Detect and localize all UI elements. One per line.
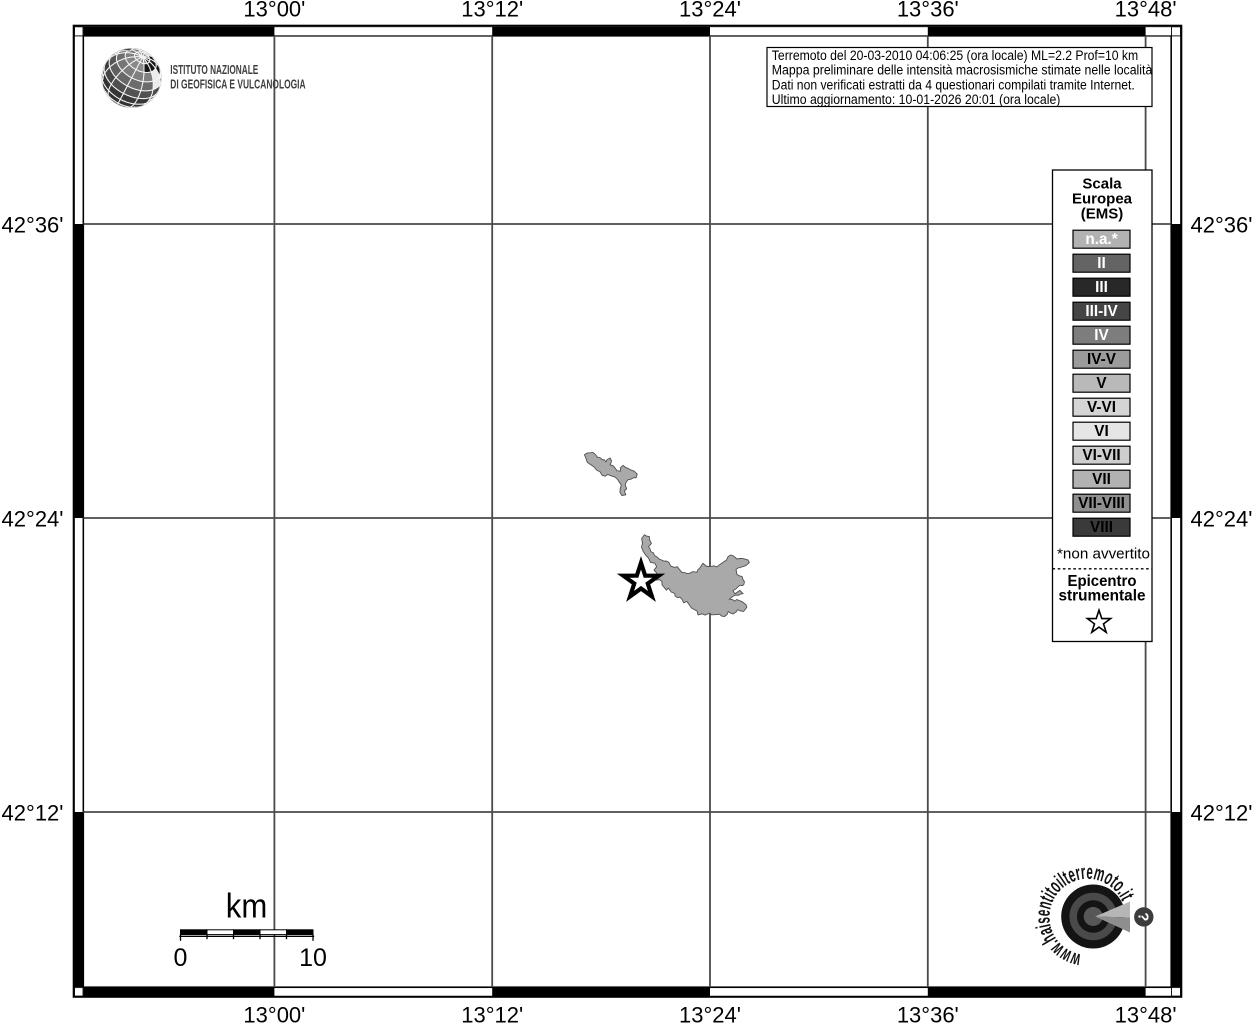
svg-text:10: 10	[299, 944, 327, 972]
svg-text:Dati non verificati estratti d: Dati non verificati estratti da 4 questi…	[772, 77, 1135, 93]
svg-text:ISTITUTO NAZIONALE: ISTITUTO NAZIONALE	[170, 62, 258, 77]
svg-text:VI: VI	[1094, 423, 1108, 440]
svg-text:13°48': 13°48'	[1115, 0, 1177, 22]
svg-text:II: II	[1097, 255, 1106, 272]
svg-text:strumentale: strumentale	[1059, 587, 1146, 604]
svg-text:13°36': 13°36'	[897, 0, 959, 22]
svg-text:n.a.*: n.a.*	[1085, 231, 1117, 248]
svg-text:13°00': 13°00'	[243, 1003, 305, 1024]
svg-text:(EMS): (EMS)	[1081, 205, 1124, 222]
svg-text:42°36': 42°36'	[2, 213, 64, 238]
svg-text:13°12': 13°12'	[461, 1003, 523, 1024]
svg-text:IV: IV	[1094, 327, 1109, 344]
svg-text:km: km	[226, 887, 268, 925]
svg-text:42°24': 42°24'	[1191, 507, 1253, 532]
svg-text:VII: VII	[1092, 471, 1111, 488]
svg-text:13°36': 13°36'	[897, 1003, 959, 1024]
svg-text:13°48': 13°48'	[1115, 1003, 1177, 1024]
svg-text:Terremoto del 20-03-2010 04:06: Terremoto del 20-03-2010 04:06:25 (ora l…	[772, 48, 1138, 64]
svg-text:III-IV: III-IV	[1085, 303, 1118, 320]
svg-text:VIII: VIII	[1090, 519, 1113, 536]
svg-text:*non avvertito: *non avvertito	[1057, 546, 1150, 563]
svg-text:42°12': 42°12'	[2, 801, 64, 826]
svg-text:IV-V: IV-V	[1087, 351, 1117, 368]
svg-text:V-VI: V-VI	[1087, 399, 1116, 416]
svg-text:?: ?	[1135, 912, 1152, 921]
svg-text:Mappa preliminare delle intens: Mappa preliminare delle intensità macros…	[772, 63, 1153, 79]
svg-text:VI-VII: VI-VII	[1082, 447, 1120, 464]
svg-text:42°24': 42°24'	[2, 507, 64, 532]
svg-text:V: V	[1096, 375, 1107, 392]
svg-text:42°12': 42°12'	[1191, 801, 1253, 826]
svg-text:13°24': 13°24'	[679, 1003, 741, 1024]
svg-text:0: 0	[174, 944, 188, 972]
svg-text:VII-VIII: VII-VIII	[1078, 495, 1125, 512]
svg-text:13°24': 13°24'	[679, 0, 741, 22]
svg-text:13°00': 13°00'	[243, 0, 305, 22]
svg-text:Ultimo aggiornamento: 10-01-20: Ultimo aggiornamento: 10-01-2026 20:01 (…	[772, 92, 1061, 108]
svg-text:III: III	[1095, 279, 1108, 296]
svg-text:DI GEOFISICA E VULCANOLOGIA: DI GEOFISICA E VULCANOLOGIA	[170, 76, 305, 91]
svg-text:42°36': 42°36'	[1191, 213, 1253, 238]
svg-text:13°12': 13°12'	[461, 0, 523, 22]
